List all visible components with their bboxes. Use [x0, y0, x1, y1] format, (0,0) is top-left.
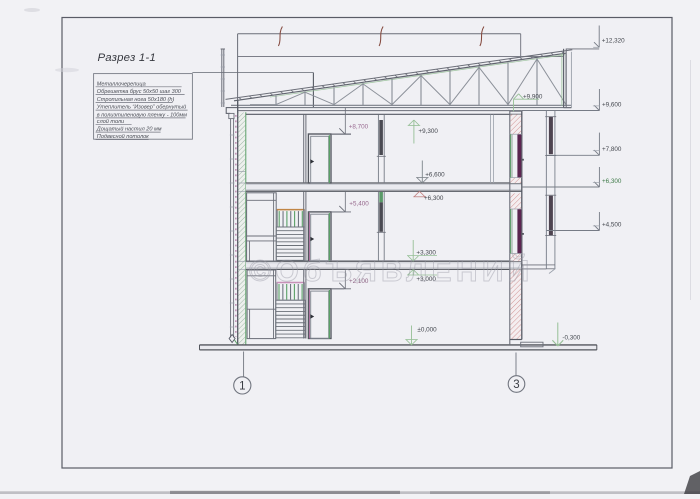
svg-text:в полиэтиленовую пленку - 100: в полиэтиленовую пленку - 100мм [97, 112, 187, 118]
svg-text:+9,600: +9,600 [602, 101, 622, 108]
svg-text:+9,300: +9,300 [418, 128, 438, 135]
svg-text:©ОбЪЯВЛЕНИЙ: ©ОбЪЯВЛЕНИЙ [249, 254, 534, 288]
svg-text:Подвесной потолок: Подвесной потолок [97, 133, 149, 140]
svg-text:±0,000: ±0,000 [417, 327, 437, 334]
svg-text:+7,800: +7,800 [602, 146, 622, 153]
svg-text:+4,500: +4,500 [602, 221, 622, 228]
svg-text:+9,900: +9,900 [523, 93, 543, 100]
svg-text:1: 1 [239, 381, 245, 393]
svg-text:слой толи: слой толи [97, 118, 124, 125]
svg-text:Дощатый настил 20 мм: Дощатый настил 20 мм [96, 126, 162, 133]
svg-text:+12,320: +12,320 [602, 38, 625, 45]
svg-text:+6,300: +6,300 [424, 195, 444, 202]
svg-text:+8,700: +8,700 [349, 123, 369, 130]
svg-text:Разрез 1-1: Разрез 1-1 [98, 52, 156, 64]
svg-text:+6,300: +6,300 [602, 178, 622, 185]
svg-text:3: 3 [513, 379, 519, 391]
svg-text:-0,300: -0,300 [562, 334, 580, 341]
svg-text:Стропильная нога 50х180 (h): Стропильная нога 50х180 (h) [97, 97, 175, 103]
svg-text:Утеплитель “Изовер” обернутый: Утеплитель “Изовер” обернутый [96, 104, 186, 111]
svg-text:+6,600: +6,600 [425, 171, 445, 178]
svg-text:Металлочерепица: Металлочерепица [97, 81, 146, 87]
svg-text:Обрешетка брус 50х50 шаг 300: Обрешетка брус 50х50 шаг 300 [97, 89, 182, 95]
svg-text:+5,400: +5,400 [349, 201, 369, 208]
